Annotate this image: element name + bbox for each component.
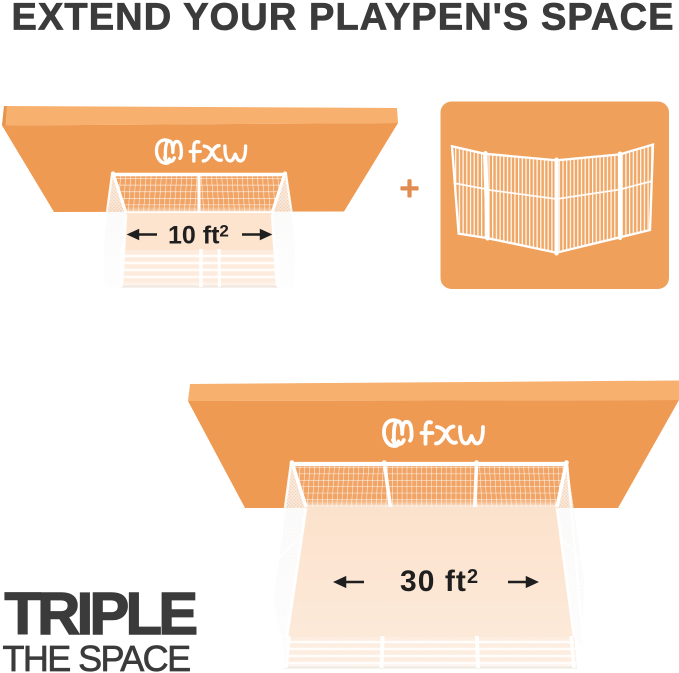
svg-text:TRIPLE: TRIPLE [5, 580, 197, 647]
svg-text:EXTEND YOUR PLAYPEN'S SPACE: EXTEND YOUR PLAYPEN'S SPACE [12, 0, 675, 39]
svg-text:THE SPACE: THE SPACE [3, 638, 191, 673]
